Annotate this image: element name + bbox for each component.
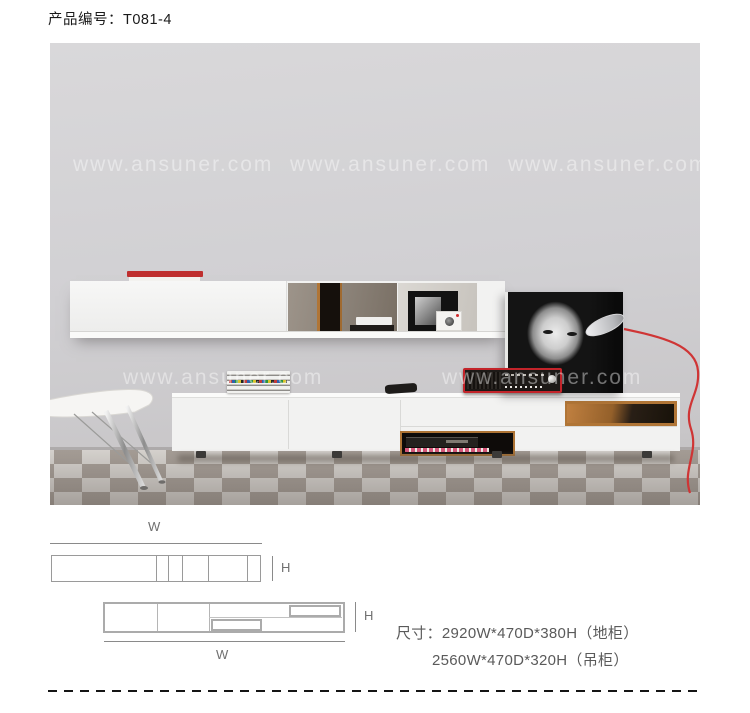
- product-photo: www.ansuner.com www.ansuner.com www.ansu…: [50, 43, 700, 505]
- poster-eye-left: [543, 330, 553, 334]
- vintage-camera: [436, 311, 462, 331]
- red-book-on-cabinet: [127, 271, 203, 281]
- watermark: www.ansuner.com: [73, 153, 273, 177]
- diagram1-height-line: [272, 556, 273, 581]
- diagram2-height-line: [355, 602, 356, 632]
- product-code-label: 产品编号：T081-4: [48, 8, 172, 29]
- media-player: [406, 437, 478, 447]
- dimensions-text-line2: 2560W*470D*320H（吊柜）: [432, 649, 629, 670]
- radio-grill: [467, 372, 501, 389]
- cd-stack: [227, 371, 290, 393]
- diagram2-width-label: W: [216, 647, 228, 662]
- radio-buttons: [505, 386, 543, 388]
- radio-knob: [548, 375, 556, 383]
- dimensions-text-line1: 尺寸：2920W*470D*380H（地柜）: [396, 622, 639, 643]
- red-book-pages: [129, 277, 200, 281]
- diagram1-divider: [168, 556, 169, 581]
- poster-shadow: [588, 292, 623, 393]
- drawer-seam: [288, 400, 289, 449]
- camera-lens: [445, 317, 454, 326]
- tv-stand-foot: [196, 451, 206, 458]
- wood-edged-panel: [317, 283, 342, 331]
- product-page: 产品编号：T081-4: [0, 0, 750, 713]
- watermark: www.ansuner.com: [290, 153, 490, 177]
- wall-cabinet-open-shelf-left: [288, 283, 397, 331]
- diagram2-height-label: H: [364, 608, 373, 623]
- wall-cabinet-open-shelf-right: [398, 283, 477, 331]
- camera-red-dot: [456, 314, 459, 317]
- dashed-divider: [48, 690, 700, 692]
- watermark: www.ansuner.com: [508, 153, 700, 177]
- media-player-display: [446, 440, 468, 443]
- watermark: www.ansuner.com: [123, 366, 323, 390]
- cd-stack-colored-spines: [229, 380, 287, 383]
- diagram2-divider: [157, 604, 158, 631]
- red-vintage-radio: [463, 368, 562, 393]
- diagram2-width-line: [104, 641, 345, 642]
- poster-eye-right: [567, 332, 577, 336]
- diagram1-width-line: [50, 543, 262, 544]
- diagram2-open-compartment: [289, 605, 341, 617]
- diagram1-width-label: W: [148, 519, 160, 534]
- wall-cabinet: [70, 281, 505, 338]
- tv-stand-shadow: [178, 455, 674, 462]
- diagram-tv-stand: [103, 602, 345, 633]
- tv-stand-foot: [642, 451, 652, 458]
- diagram2-media-compartment: [211, 619, 262, 631]
- white-hifi-device: [356, 317, 392, 325]
- diagram1-divider: [208, 556, 209, 581]
- tv-stand: [172, 393, 680, 458]
- diagram-wall-cabinet: [51, 555, 261, 582]
- diagram1-divider: [156, 556, 157, 581]
- drawer-seam-horizontal: [400, 426, 677, 427]
- diagram2-mid-seam: [209, 617, 342, 618]
- diagram1-divider: [247, 556, 248, 581]
- wall-cabinet-door: [70, 281, 287, 331]
- tv-stand-foot: [332, 451, 342, 458]
- diagram1-height-label: H: [281, 560, 290, 575]
- radio-scale: [505, 374, 545, 376]
- tv-stand-foot: [492, 451, 502, 458]
- diagram1-divider: [182, 556, 183, 581]
- tv-stand-body: [172, 398, 680, 451]
- media-sticker-strip: [405, 448, 489, 452]
- wood-compartment: [565, 401, 677, 426]
- wall-cabinet-bottom-shelf: [70, 331, 505, 338]
